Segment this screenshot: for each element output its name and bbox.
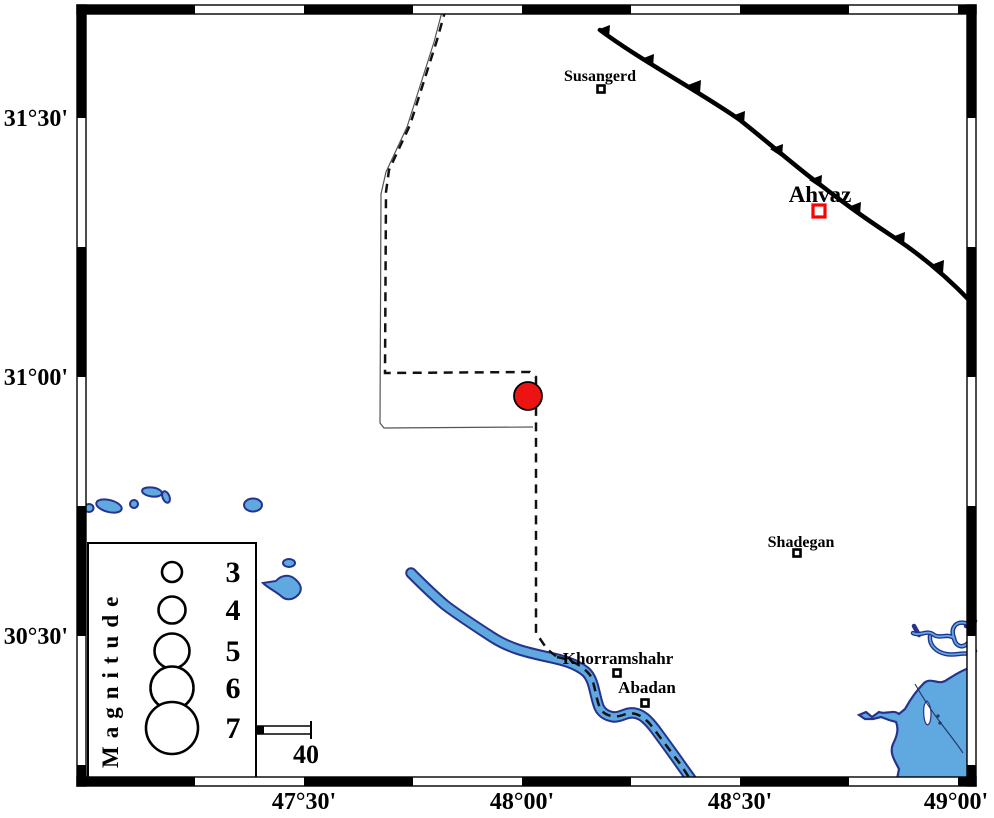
- legend-mag-6: 6: [226, 672, 241, 705]
- legend-mag-7: 7: [226, 712, 241, 745]
- x-tick-49-00: 49°00': [924, 789, 988, 815]
- susangerd-marker-icon: [598, 86, 605, 93]
- scale-bar-body: [257, 726, 311, 734]
- abadan-marker-icon: [642, 700, 649, 707]
- epicenter-marker-icon: [514, 382, 542, 410]
- x-tick-48-30: 48°30': [708, 789, 772, 815]
- legend-mag-3: 3: [226, 556, 241, 589]
- legend-numbers: 3 4 5 6 7: [226, 556, 241, 745]
- legend-title: Magnitude: [98, 589, 123, 768]
- magnitude-legend: Magnitude 3 4 5 6 7: [88, 543, 256, 779]
- susangerd-label: Susangerd: [564, 68, 636, 85]
- y-tick-30-30: 30°30': [4, 624, 68, 650]
- khorramshahr-label: Khorramshahr: [563, 649, 674, 668]
- y-tick-31-30: 31°30': [4, 106, 68, 132]
- x-tick-48-00: 48°00': [490, 789, 554, 815]
- scale-bar-label: 40: [293, 740, 319, 769]
- scale-bar-cap: [257, 726, 264, 734]
- legend-mag-4: 4: [226, 594, 241, 627]
- y-tick-31-00: 31°00': [4, 365, 68, 391]
- map-figure: Susangerd Ahvaz Shadegan Khorramshahr Ab…: [0, 0, 994, 818]
- x-tick-47-30: 47°30': [272, 789, 336, 815]
- map-canvas: Susangerd Ahvaz Shadegan Khorramshahr Ab…: [0, 0, 994, 818]
- khorramshahr-marker-icon: [614, 670, 621, 677]
- ahvaz-label: Ahvaz: [789, 182, 852, 207]
- abadan-label: Abadan: [618, 678, 676, 697]
- shadegan-label: Shadegan: [768, 534, 835, 551]
- legend-mag-5: 5: [226, 635, 241, 668]
